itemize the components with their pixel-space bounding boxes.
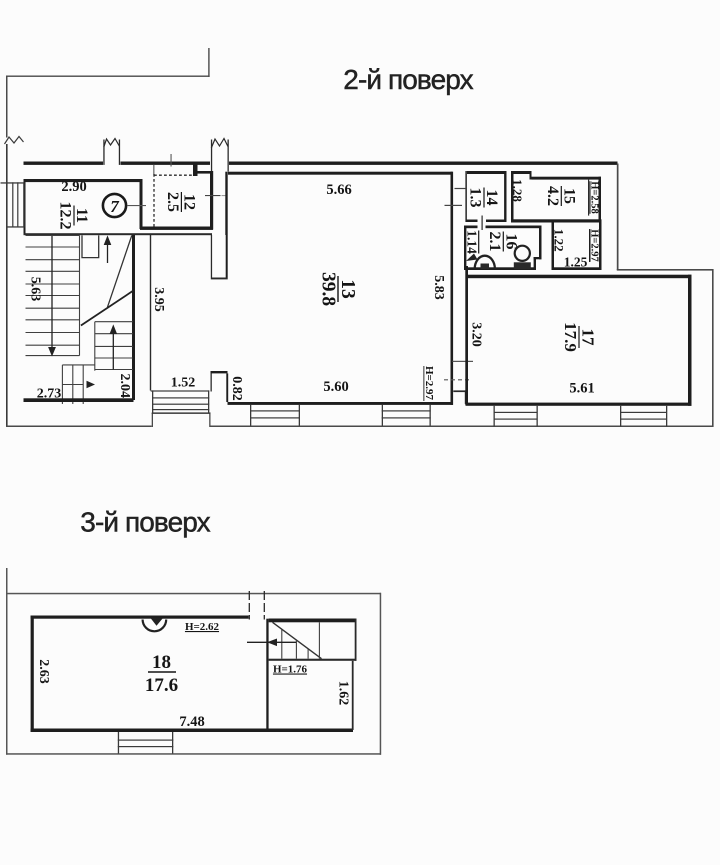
- svg-text:2.5: 2.5: [164, 192, 181, 212]
- svg-text:39.8: 39.8: [318, 272, 339, 306]
- svg-text:2.1: 2.1: [486, 232, 503, 252]
- svg-text:Н=2.97: Н=2.97: [423, 366, 435, 401]
- svg-text:12.2: 12.2: [57, 202, 74, 230]
- svg-text:1.52: 1.52: [171, 376, 196, 391]
- svg-text:5.66: 5.66: [326, 182, 351, 198]
- svg-text:18: 18: [152, 652, 171, 673]
- svg-text:Н=2.97: Н=2.97: [589, 229, 600, 262]
- svg-text:5.61: 5.61: [569, 381, 594, 397]
- svg-text:17: 17: [579, 329, 598, 347]
- svg-text:2.63: 2.63: [36, 659, 51, 684]
- svg-text:3-й поверх: 3-й поверх: [80, 507, 210, 538]
- svg-text:3.20: 3.20: [469, 322, 484, 347]
- svg-text:2.04: 2.04: [117, 373, 132, 398]
- svg-text:1.22: 1.22: [551, 229, 566, 252]
- svg-text:5.60: 5.60: [323, 379, 348, 395]
- svg-text:14: 14: [483, 190, 500, 206]
- svg-text:7.48: 7.48: [179, 714, 204, 730]
- svg-text:15: 15: [560, 188, 577, 204]
- svg-text:1.62: 1.62: [335, 681, 350, 706]
- svg-text:11: 11: [73, 208, 90, 223]
- svg-text:2.90: 2.90: [61, 179, 86, 195]
- svg-text:7: 7: [110, 197, 120, 216]
- svg-text:5.63: 5.63: [27, 277, 42, 302]
- svg-text:1.14: 1.14: [465, 230, 480, 254]
- svg-text:4.2: 4.2: [544, 186, 561, 206]
- svg-text:1.3: 1.3: [467, 188, 484, 208]
- svg-text:13: 13: [337, 279, 358, 299]
- svg-text:2.73: 2.73: [37, 387, 62, 402]
- svg-text:3.95: 3.95: [151, 287, 166, 312]
- svg-text:5.83: 5.83: [431, 275, 446, 300]
- svg-text:2-й поверх: 2-й поверх: [343, 64, 473, 95]
- svg-text:17.6: 17.6: [145, 675, 178, 696]
- svg-text:12: 12: [180, 194, 197, 210]
- svg-text:17.9: 17.9: [561, 322, 580, 352]
- svg-text:Н=2.58: Н=2.58: [589, 181, 600, 214]
- svg-text:Н=1.76: Н=1.76: [273, 664, 308, 676]
- svg-text:1.25: 1.25: [564, 255, 588, 270]
- svg-text:0.82: 0.82: [229, 376, 244, 401]
- svg-text:Н=2.62: Н=2.62: [185, 621, 220, 633]
